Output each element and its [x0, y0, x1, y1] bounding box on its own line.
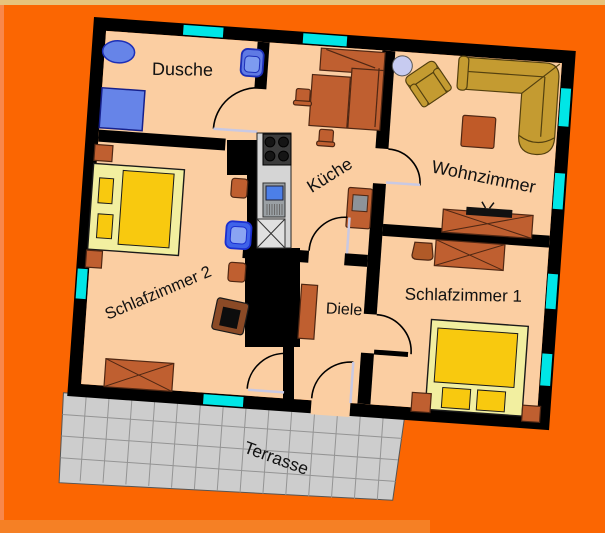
svg-text:Schlafzimmer 1: Schlafzimmer 1	[405, 285, 522, 306]
svg-text:Diele: Diele	[325, 300, 362, 319]
svg-text:Dusche: Dusche	[152, 59, 213, 80]
